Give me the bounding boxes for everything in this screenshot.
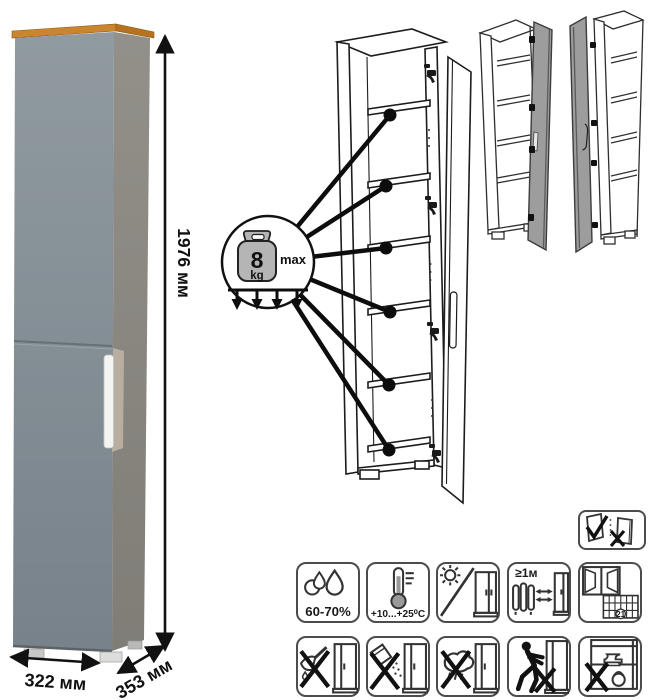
sun-icon: [445, 570, 455, 580]
humidity-icon: 60-70%: [296, 562, 360, 623]
load-unit: kg: [250, 270, 263, 282]
wardrobe-glyph: [333, 644, 357, 692]
do-not-overload-icon: [578, 636, 642, 697]
door-handle: [104, 355, 114, 448]
no-wet-cleaning-icon: [436, 636, 500, 697]
open-door: [442, 57, 471, 503]
gray-door-left: [570, 17, 592, 252]
shelves: [368, 100, 430, 452]
axe-glyph: [301, 647, 326, 679]
temperature-icon: +10...+25⁰C: [366, 562, 430, 623]
x-mark: [586, 663, 607, 690]
width-label: 322 мм: [24, 670, 87, 694]
exploded-cabinet-drawing: [337, 29, 471, 503]
height-label: 1976 мм: [174, 228, 194, 298]
no-sharp-tools-icon: [296, 636, 360, 697]
kettlebell-icon: [613, 672, 625, 686]
cabinet-side: [112, 32, 150, 651]
wardrobe-glyph: [474, 572, 497, 616]
furniture-instruction-sheet: 1976 мм 322 мм 353 мм: [0, 0, 648, 700]
calendar-day: 21: [616, 610, 626, 619]
carcass-left-wall: [337, 42, 358, 474]
height-dimension: 1976 мм: [165, 36, 194, 650]
load-qualifier: max: [280, 252, 307, 267]
door-hinged-left-variant: [570, 11, 643, 252]
width-dimension: 322 мм: [11, 657, 99, 694]
radiator-glyph: [513, 583, 534, 615]
no-abrasive-cleaners-icon: [366, 636, 430, 697]
temperature-label: +10...+25⁰C: [371, 609, 426, 620]
foot-right: [100, 652, 122, 662]
product-render: 1976 мм 322 мм 353 мм: [11, 24, 194, 700]
person-glyph: [518, 642, 542, 691]
distance-arrows: [535, 589, 552, 602]
window-sash-left: [585, 569, 595, 592]
heat-distance-icon: ≥1м: [507, 562, 571, 623]
window-sash-right: [607, 569, 617, 592]
wardrobe-glyph: [474, 644, 497, 692]
shelf-pointer-dots: [380, 109, 397, 457]
door-handle-outline: [450, 292, 457, 348]
min-distance-label: ≥1м: [515, 566, 537, 580]
shelf-load-callout: 8 kg max: [222, 216, 314, 310]
foot-left: [24, 649, 44, 658]
wardrobe-glyph: [554, 573, 569, 615]
calendar-glyph: 21: [603, 596, 638, 619]
carcass-foot-left: [360, 470, 379, 479]
do-not-push-icon: [507, 636, 571, 697]
no-direct-sunlight-icon: [436, 562, 500, 623]
wardrobe-glyph: [403, 644, 427, 692]
door-hinged-right-variant: [480, 20, 552, 250]
humidity-label: 60-70%: [305, 604, 351, 619]
foot-back: [128, 641, 142, 649]
door-reversibility-icon: [578, 510, 646, 550]
ventilation-calendar-icon: 21: [578, 562, 642, 623]
carcass-foot-right: [415, 461, 429, 469]
